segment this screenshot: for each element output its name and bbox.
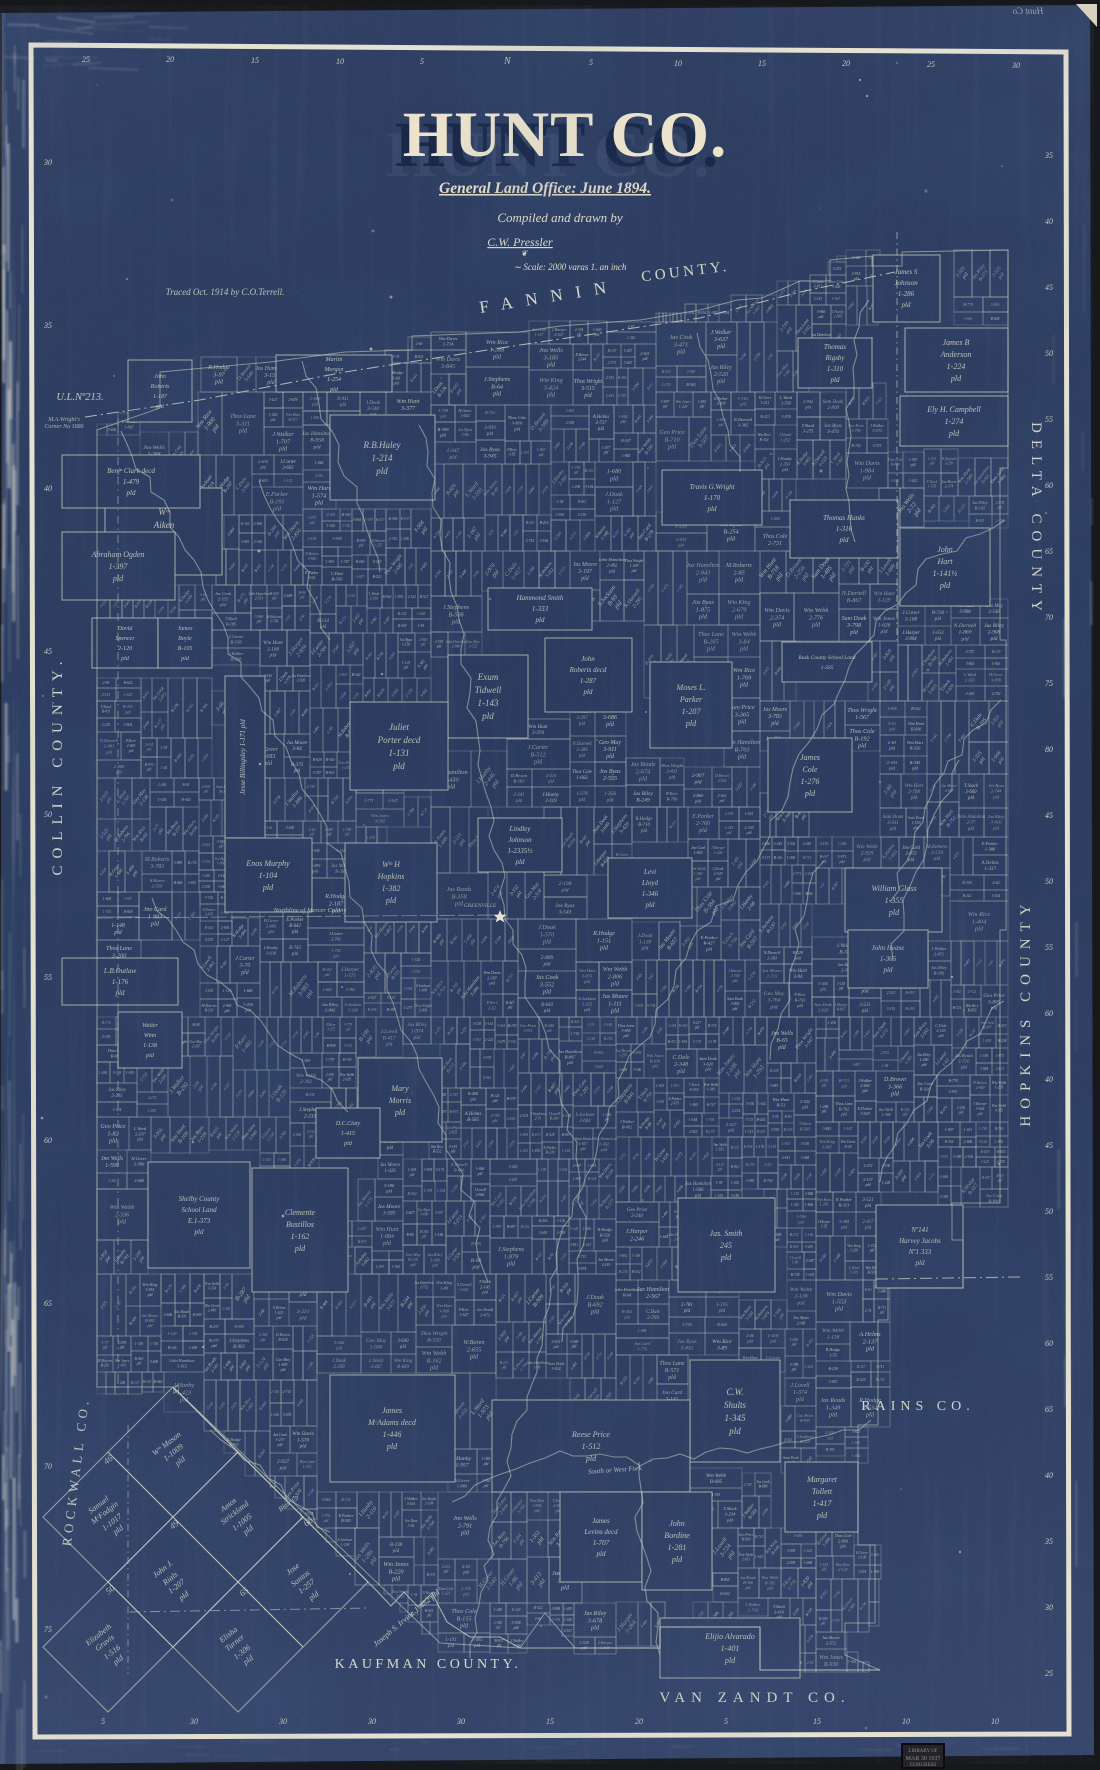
svg-text:CONGRESS: CONGRESS bbox=[910, 1763, 936, 1768]
svg-text:MAR 30 1937: MAR 30 1937 bbox=[906, 1756, 941, 1762]
svg-text:LIBRARY OF: LIBRARY OF bbox=[908, 1749, 937, 1754]
svg-text:Hunt Co: Hunt Co bbox=[1012, 6, 1044, 16]
